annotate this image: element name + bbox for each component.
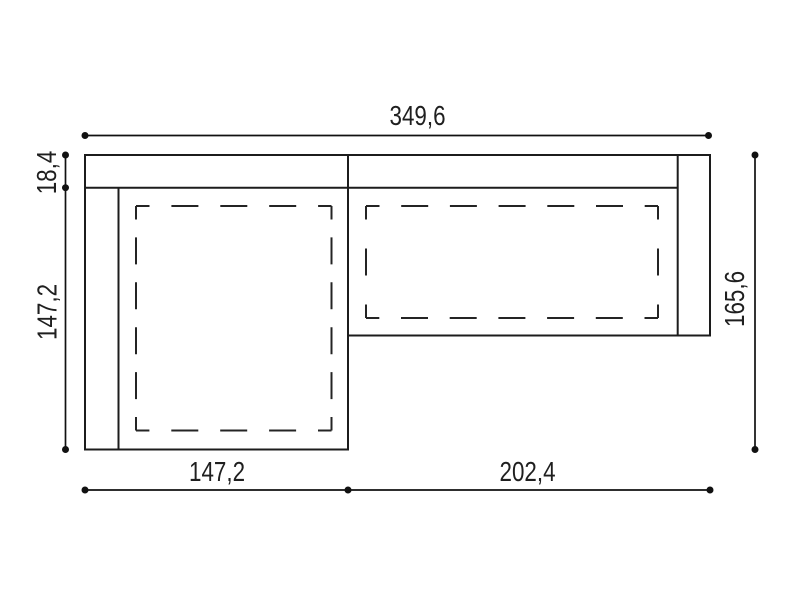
svg-text:349,6: 349,6 xyxy=(389,101,445,132)
svg-text:18,4: 18,4 xyxy=(32,151,63,195)
svg-text:147,2: 147,2 xyxy=(32,284,63,340)
svg-text:165,6: 165,6 xyxy=(720,271,751,327)
svg-text:147,2: 147,2 xyxy=(189,457,245,488)
svg-text:202,4: 202,4 xyxy=(499,457,555,488)
